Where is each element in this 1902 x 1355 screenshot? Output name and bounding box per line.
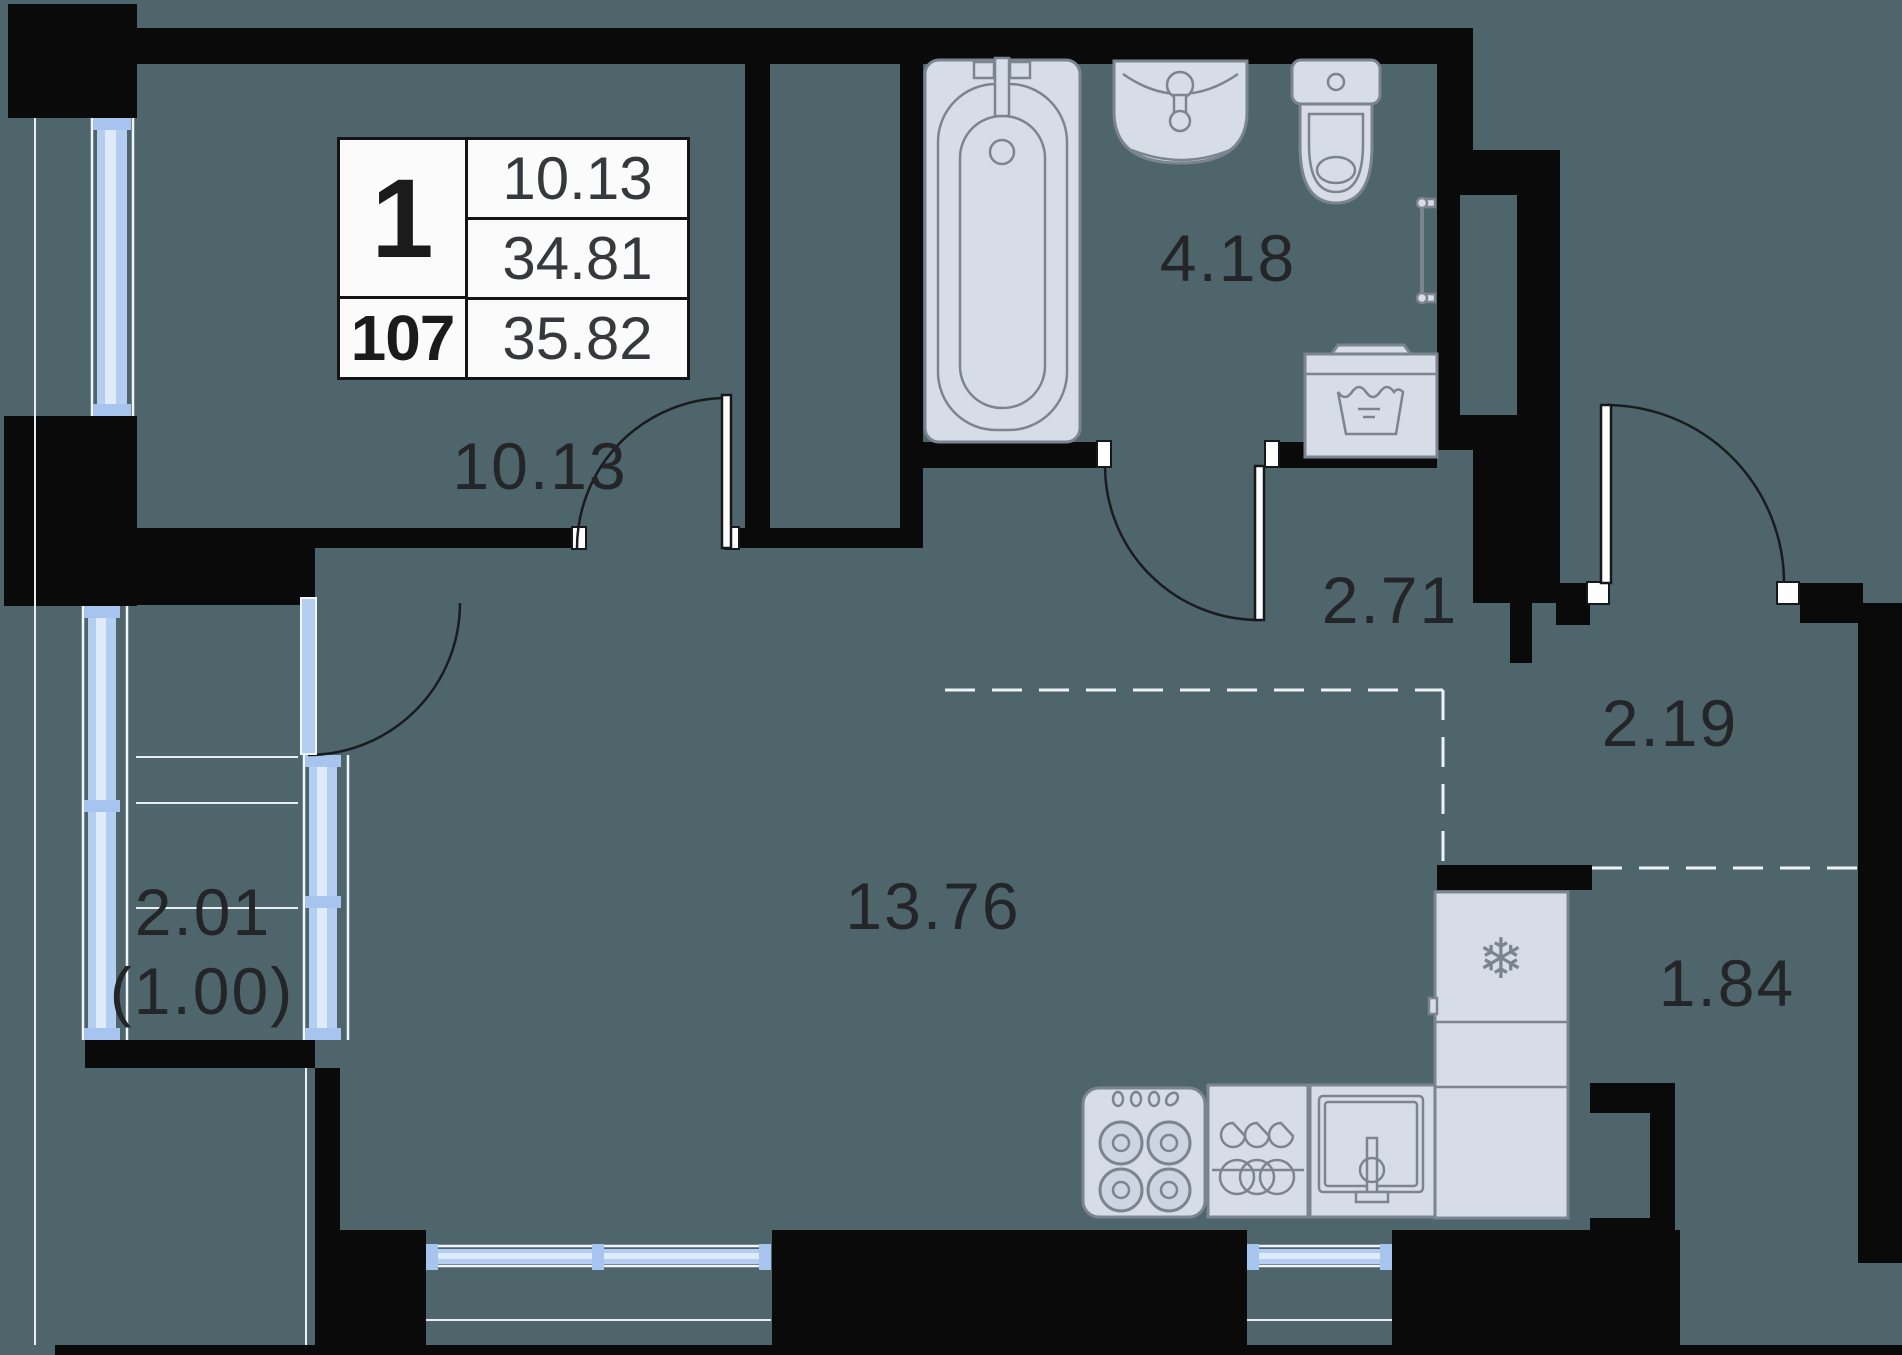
room-label-living: 10.13 xyxy=(452,428,627,504)
room-label-balcony: 2.01 xyxy=(135,874,271,950)
door-entrance xyxy=(1601,405,1784,583)
unit-total-area: 35.82 xyxy=(468,297,687,377)
unit-living-total-area: 34.81 xyxy=(468,217,687,297)
room-label-hallway: 2.71 xyxy=(1322,562,1458,638)
room-label-balcony-coef: (1.00) xyxy=(110,953,294,1029)
unit-info-right-column: 10.13 34.81 35.82 xyxy=(468,140,687,377)
window-living-left xyxy=(92,118,133,416)
unit-number: 107 xyxy=(340,299,465,377)
floor-plan: ❄ 10.13 4.18 2.71 2.19 13.76 1.84 2.01 (… xyxy=(0,0,1902,1355)
unit-rooms-count: 1 xyxy=(340,140,465,299)
unit-info-table: 1 107 10.13 34.81 35.82 xyxy=(337,137,690,380)
room-label-entry: 2.19 xyxy=(1602,685,1738,761)
snowflake-icon: ❄ xyxy=(1478,927,1525,992)
unit-info-left-column: 1 107 xyxy=(340,140,468,377)
room-wardrobe xyxy=(1592,868,1858,1230)
fridge-icon: ❄ xyxy=(1429,892,1568,1218)
room-label-bathroom: 4.18 xyxy=(1160,220,1296,296)
room-label-wardrobe: 1.84 xyxy=(1659,945,1795,1021)
window-bottom-main xyxy=(426,1244,771,1270)
window-bottom-kitchen xyxy=(1247,1244,1392,1270)
unit-row-area: 10.13 xyxy=(468,140,687,217)
room-label-main: 13.76 xyxy=(845,868,1020,944)
